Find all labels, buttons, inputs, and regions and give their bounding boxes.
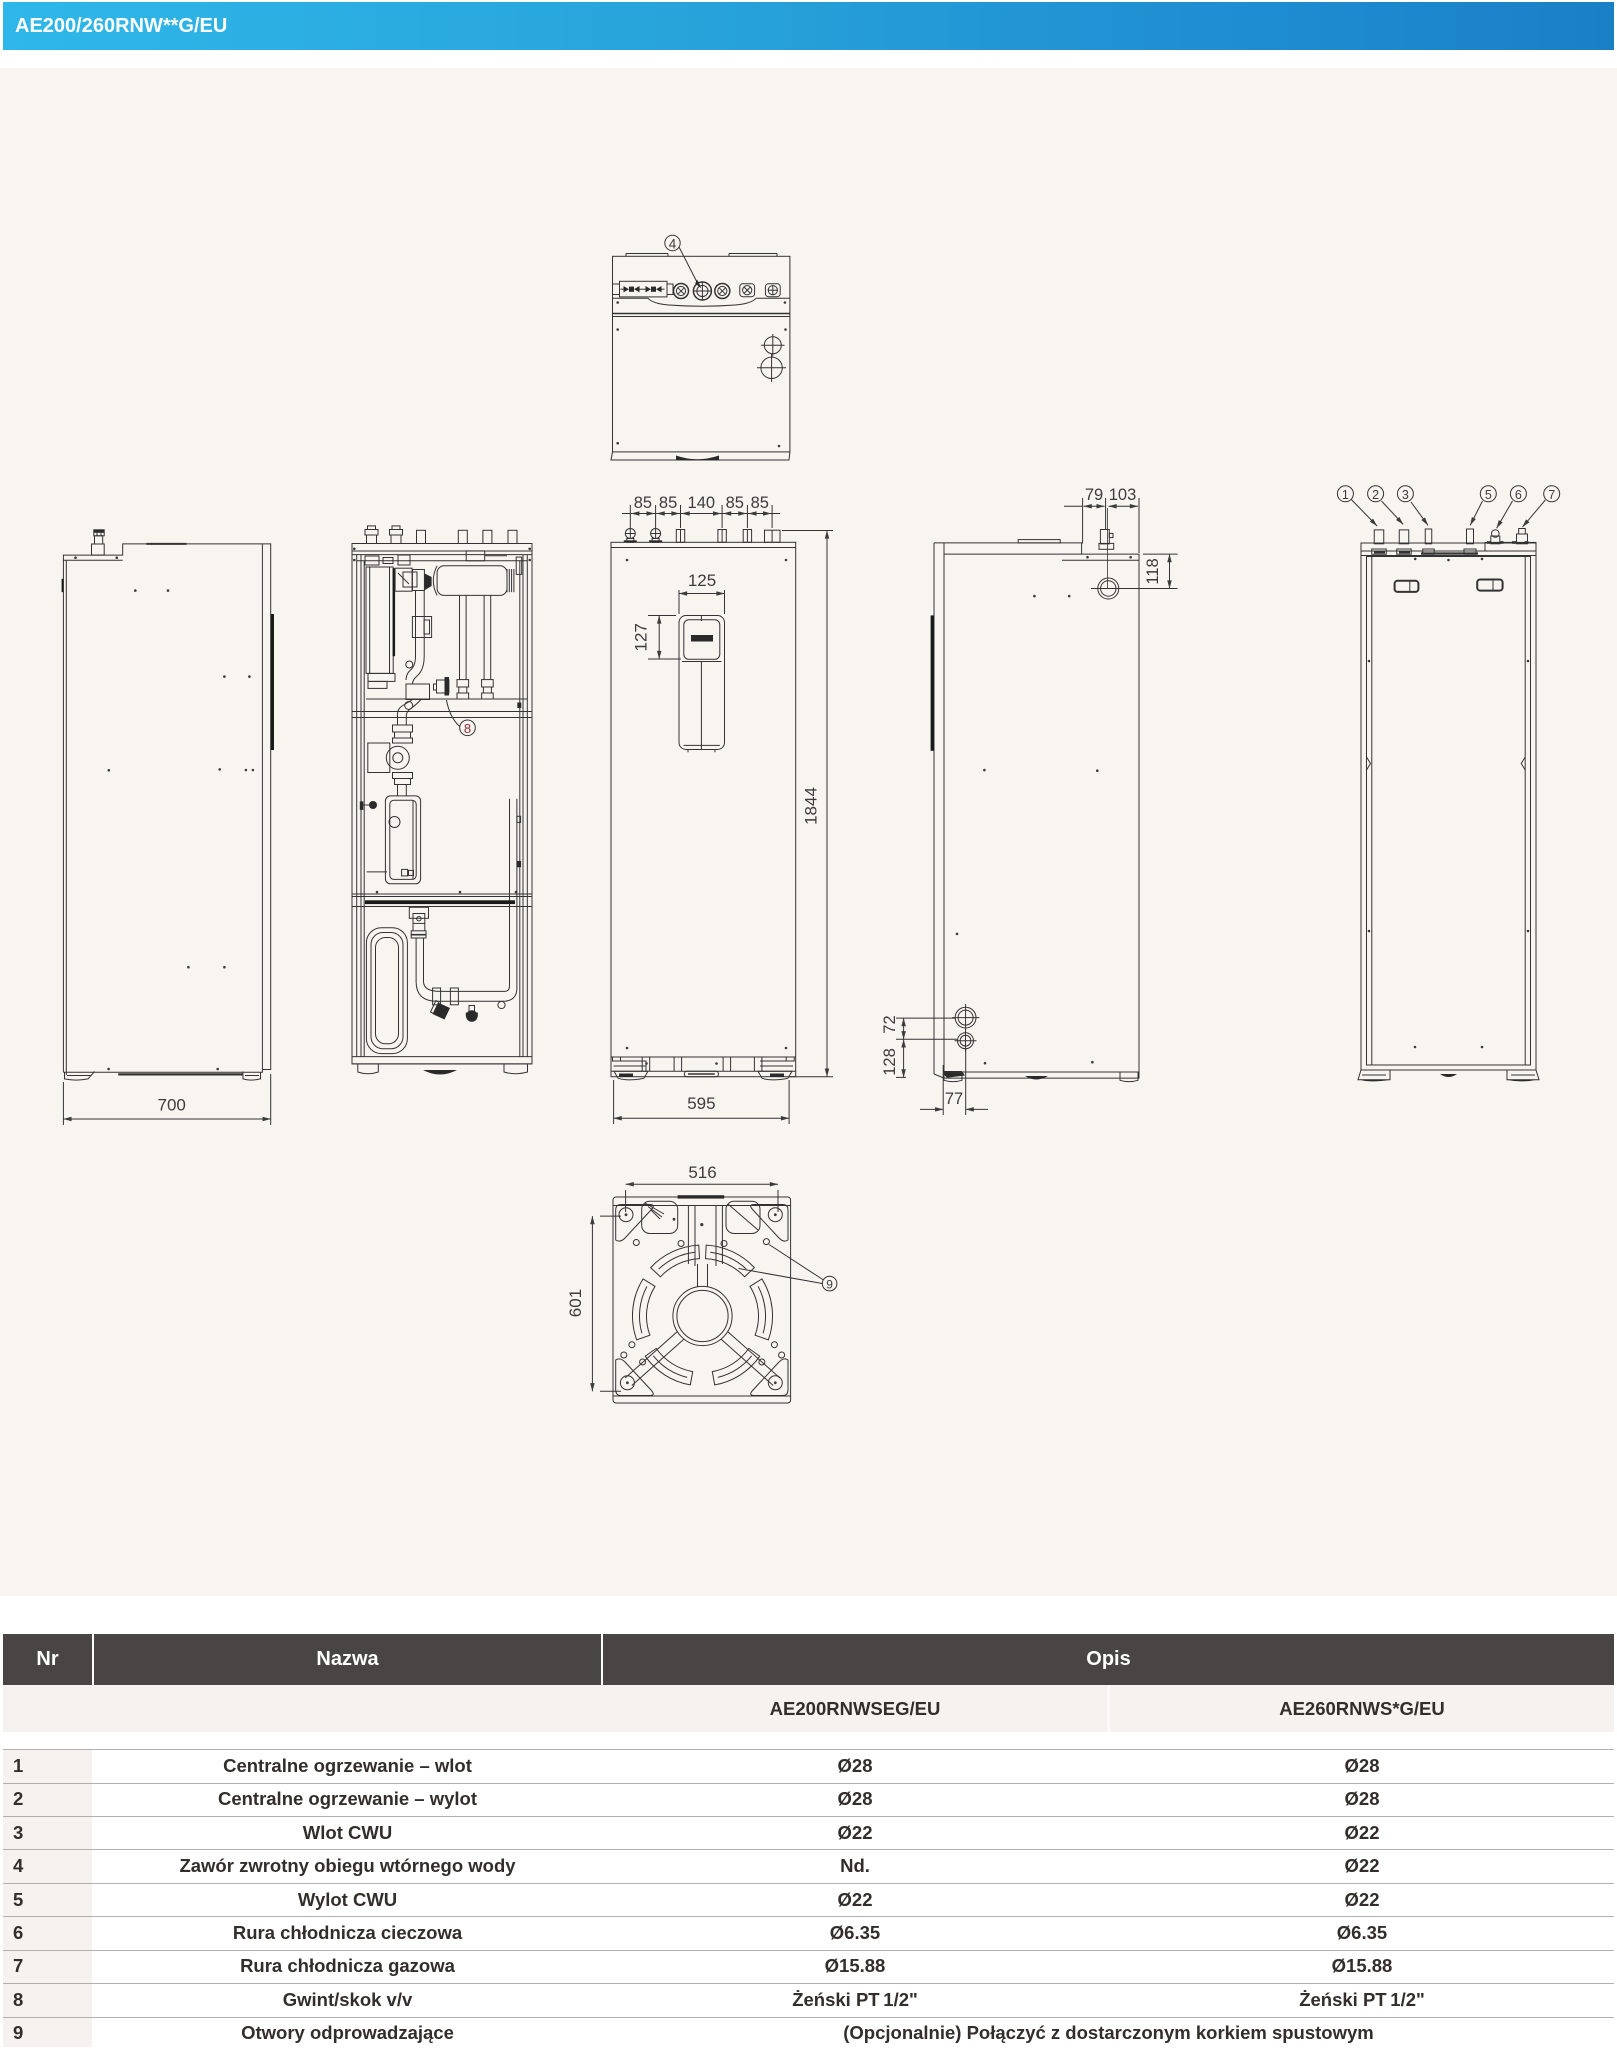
svg-text:595: 595: [687, 1094, 715, 1113]
svg-text:103: 103: [1109, 486, 1137, 504]
svg-text:85: 85: [659, 494, 677, 512]
svg-text:2: 2: [1372, 488, 1379, 502]
svg-text:140: 140: [688, 494, 716, 512]
svg-text:6: 6: [1515, 488, 1522, 502]
svg-text:85: 85: [634, 494, 652, 512]
svg-text:85: 85: [726, 494, 744, 512]
svg-text:128: 128: [881, 1048, 899, 1076]
svg-text:79: 79: [1085, 486, 1103, 504]
svg-text:1: 1: [1342, 488, 1349, 502]
svg-text:8: 8: [464, 721, 471, 736]
svg-text:601: 601: [566, 1289, 585, 1317]
svg-text:4: 4: [669, 236, 677, 251]
svg-text:127: 127: [632, 623, 651, 651]
svg-text:5: 5: [1485, 488, 1492, 502]
svg-text:85: 85: [751, 494, 769, 512]
svg-text:3: 3: [1402, 488, 1409, 502]
svg-text:118: 118: [1144, 558, 1162, 584]
svg-text:77: 77: [945, 1090, 963, 1108]
svg-text:700: 700: [158, 1096, 186, 1115]
svg-text:9: 9: [826, 1277, 833, 1291]
svg-text:72: 72: [881, 1015, 899, 1033]
svg-text:1844: 1844: [802, 787, 821, 825]
svg-text:125: 125: [688, 571, 716, 590]
svg-text:516: 516: [688, 1163, 716, 1182]
svg-text:7: 7: [1548, 488, 1555, 502]
